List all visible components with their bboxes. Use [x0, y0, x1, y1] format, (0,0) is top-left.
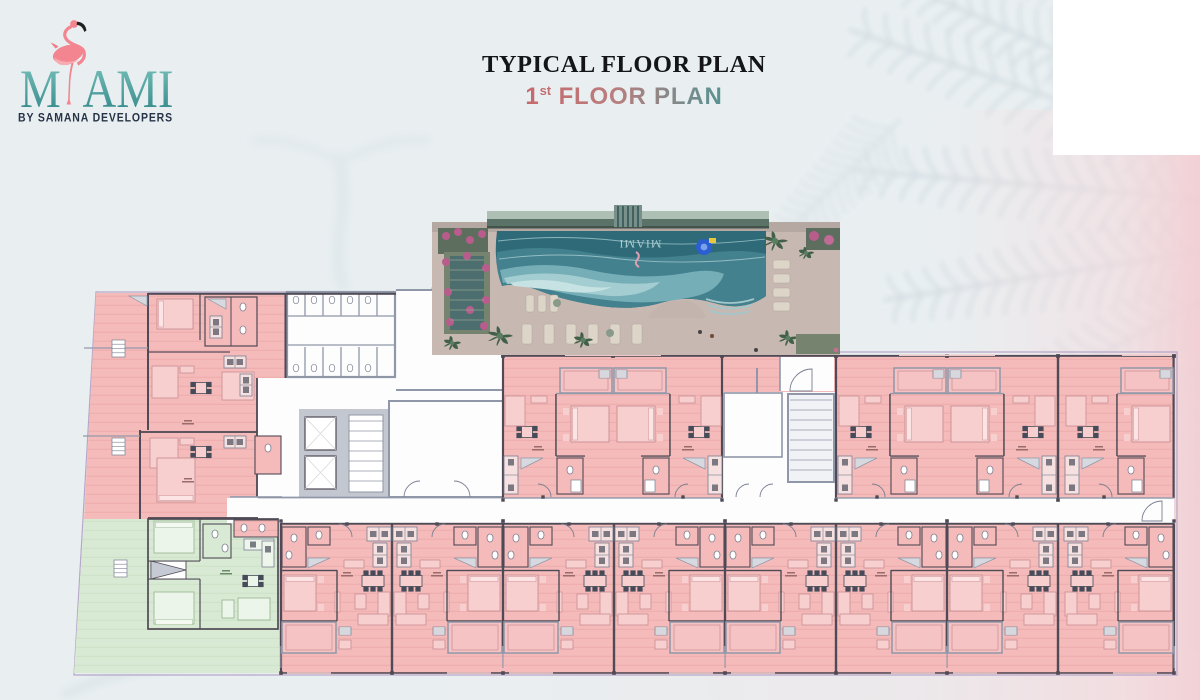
svg-text:BY SAMANA DEVELOPERS: BY SAMANA DEVELOPERS	[18, 111, 173, 125]
svg-text:MIAMI: MIAMI	[619, 237, 662, 251]
